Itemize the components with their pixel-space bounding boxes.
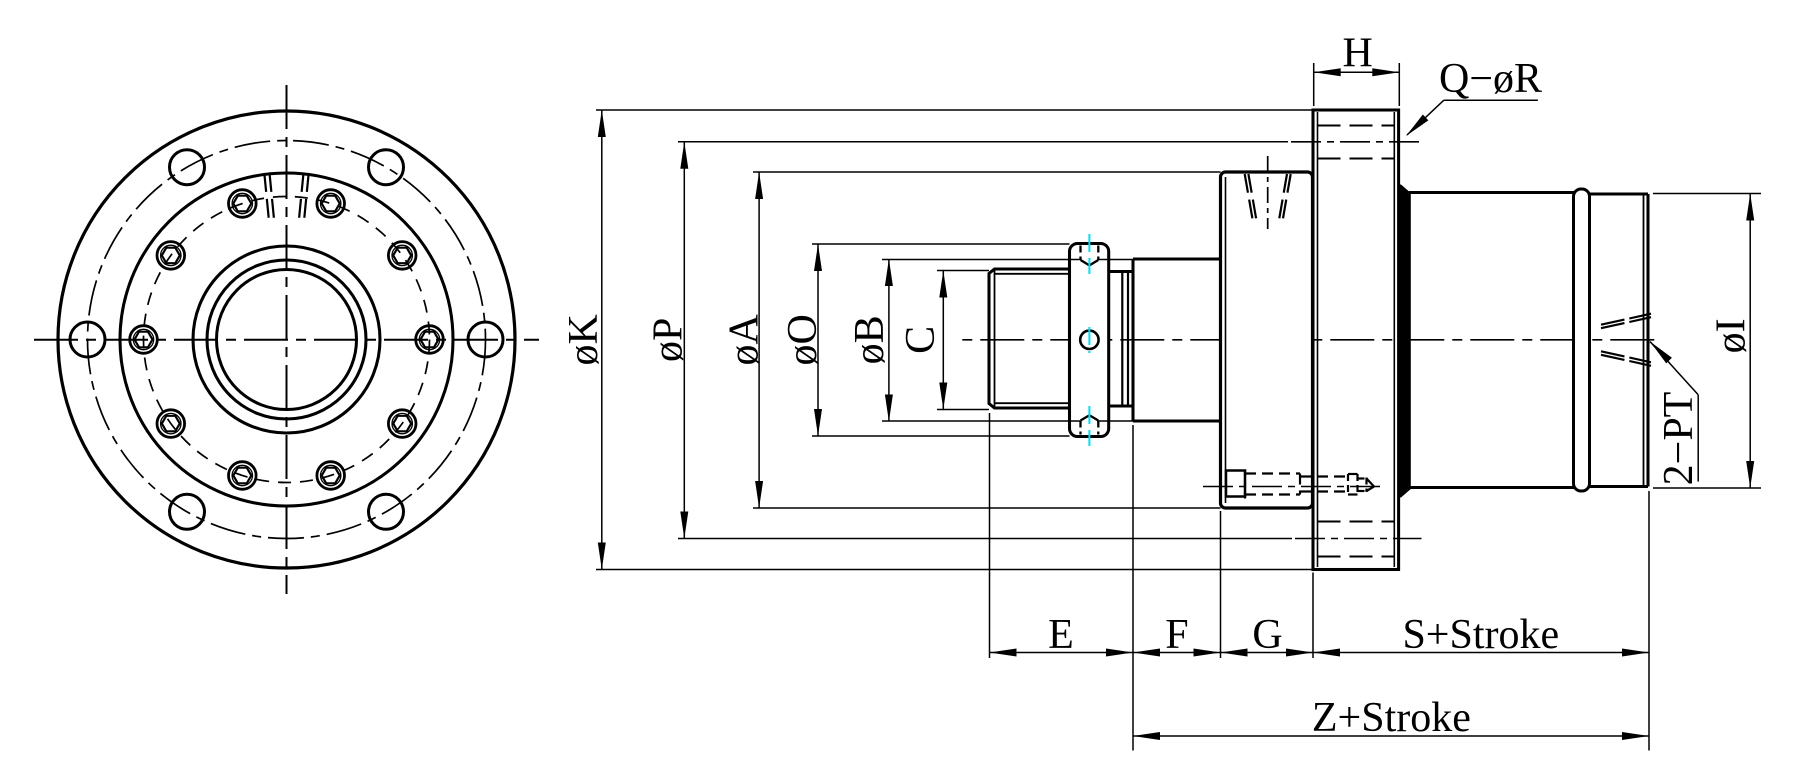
svg-text:C: C: [898, 326, 944, 354]
svg-text:øI: øI: [1709, 318, 1755, 353]
svg-text:S+Stroke: S+Stroke: [1402, 612, 1559, 658]
svg-text:H: H: [1343, 31, 1373, 77]
svg-text:Z+Stroke: Z+Stroke: [1312, 695, 1471, 741]
svg-text:G: G: [1252, 612, 1282, 658]
svg-text:E: E: [1048, 612, 1074, 658]
svg-text:øO: øO: [780, 314, 826, 365]
svg-text:øK: øK: [561, 314, 607, 365]
svg-text:øB: øB: [847, 315, 893, 364]
svg-text:øA: øA: [722, 313, 768, 365]
svg-text:øP: øP: [646, 318, 692, 362]
svg-text:F: F: [1165, 612, 1188, 658]
svg-text:Q−øR: Q−øR: [1439, 56, 1542, 102]
svg-text:2−PT: 2−PT: [1656, 392, 1702, 486]
